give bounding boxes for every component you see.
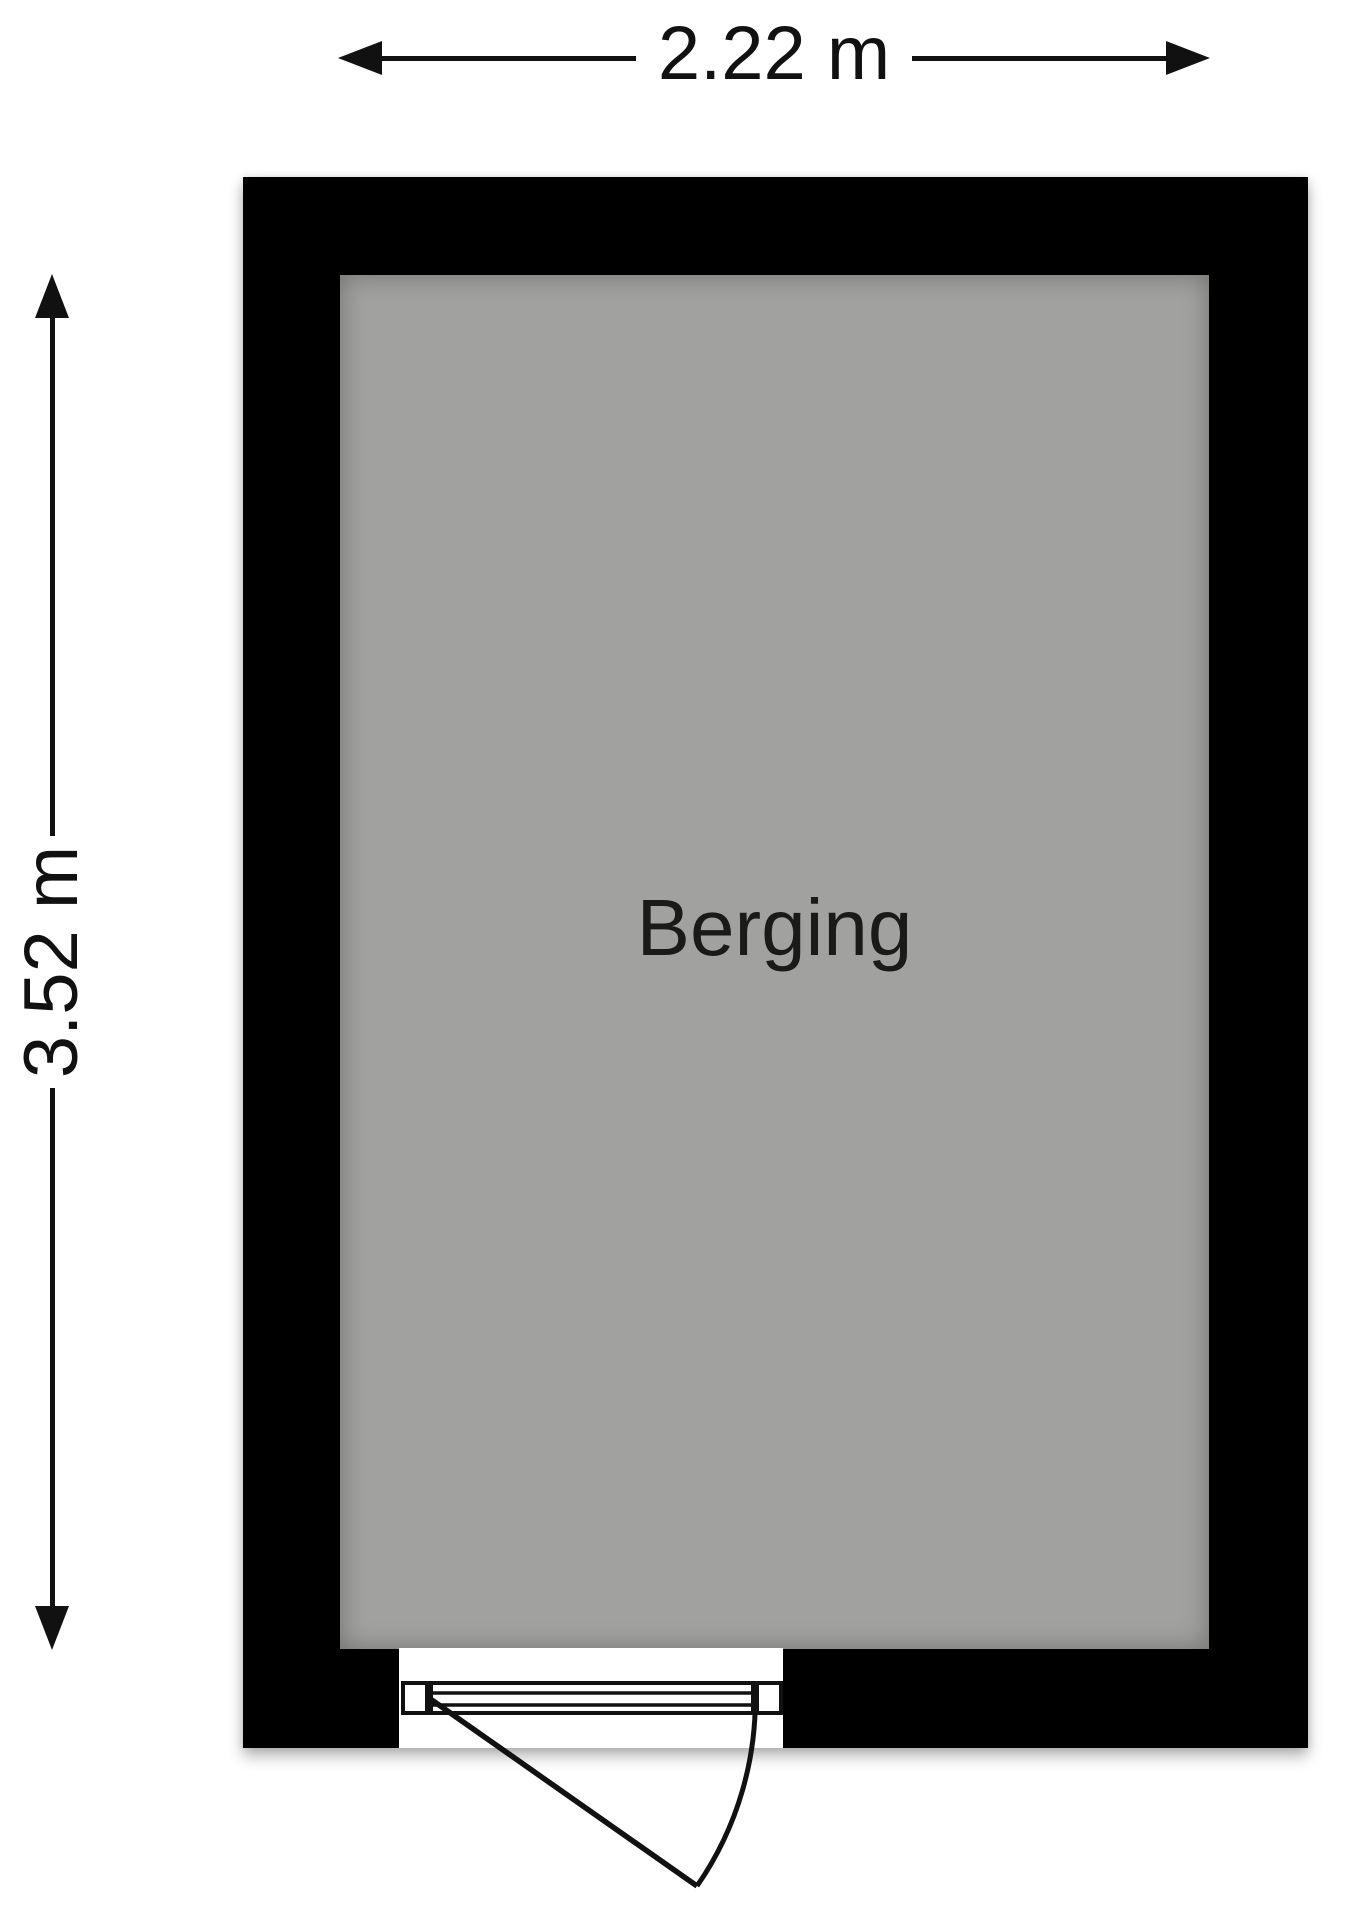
door-post-right xyxy=(757,1683,781,1713)
arrow-down-icon xyxy=(35,1606,69,1650)
arrow-up-icon xyxy=(35,274,69,318)
door-leaf xyxy=(429,1698,697,1886)
width-dimension-line-right xyxy=(912,56,1166,61)
door-post-left xyxy=(403,1683,427,1713)
arrow-left-icon xyxy=(338,41,382,75)
width-dimension-line-left xyxy=(382,56,636,61)
height-dimension-line-bottom xyxy=(50,1088,55,1606)
door-symbol xyxy=(380,1640,820,1920)
room-floor: Berging xyxy=(340,275,1209,1649)
width-dimension-label: 2.22 m xyxy=(636,16,912,92)
room-label: Berging xyxy=(637,888,913,968)
height-dimension-line-top xyxy=(50,318,55,836)
height-dimension-label-box: 3.52 m xyxy=(12,836,92,1088)
width-dimension: 2.22 m xyxy=(338,8,1210,108)
height-dimension-label: 3.52 m xyxy=(14,846,90,1078)
height-dimension: 3.52 m xyxy=(12,274,92,1650)
door-sill xyxy=(431,1683,753,1713)
arrow-right-icon xyxy=(1166,41,1210,75)
floorplan-canvas: 2.22 m 3.52 m Berging xyxy=(0,0,1358,1920)
wall-frame: Berging xyxy=(243,177,1308,1748)
door-swing-arc xyxy=(697,1685,755,1886)
